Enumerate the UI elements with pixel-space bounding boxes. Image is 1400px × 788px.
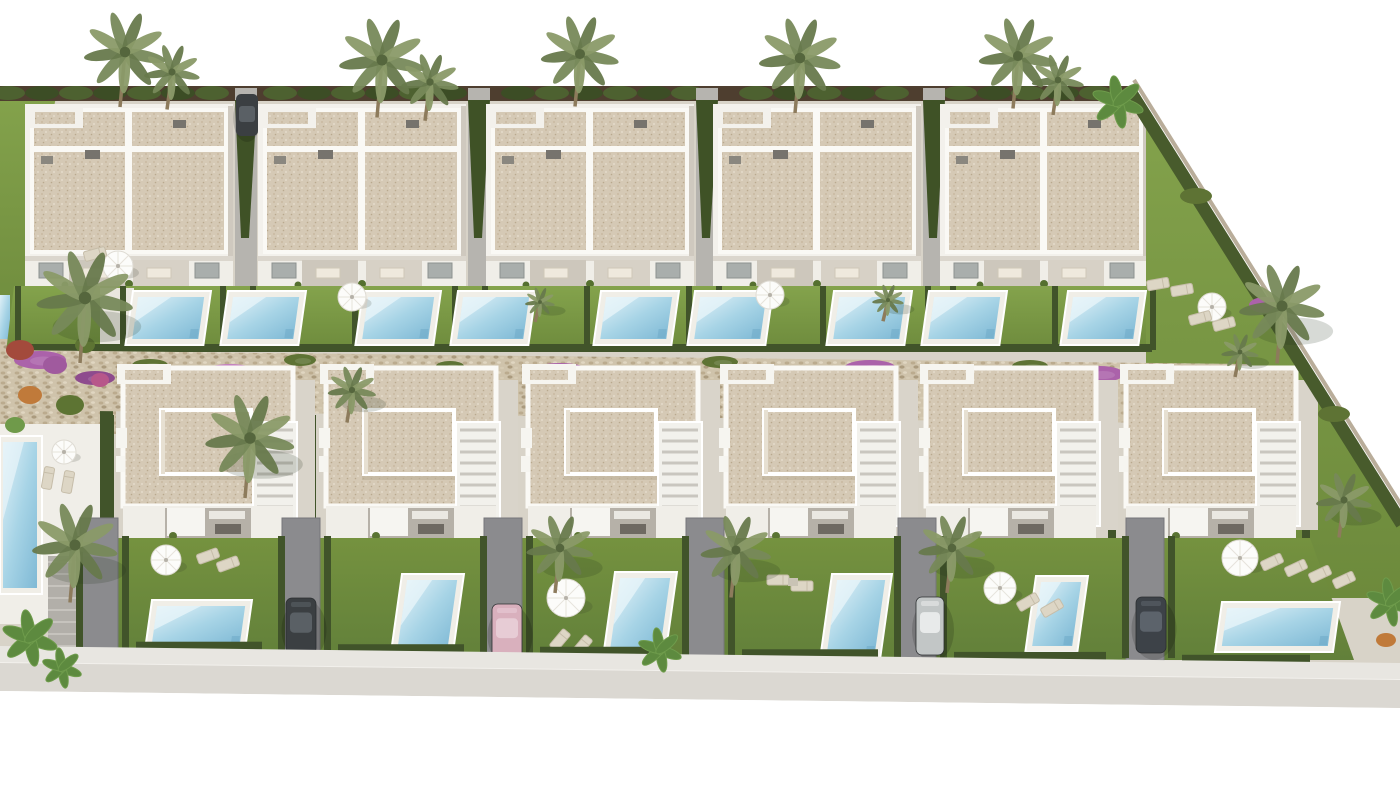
wall-hedge bbox=[263, 86, 297, 100]
dining-table bbox=[215, 524, 241, 534]
wall-hedge bbox=[297, 86, 331, 100]
villa-5 bbox=[919, 364, 1118, 540]
awning bbox=[370, 508, 408, 536]
private-pool bbox=[125, 291, 211, 345]
roof-vent bbox=[318, 150, 333, 159]
duplex-facade bbox=[940, 256, 1148, 290]
private-pool bbox=[1060, 291, 1146, 345]
villa-1 bbox=[116, 364, 315, 540]
wall-hedge bbox=[59, 86, 93, 100]
window bbox=[1110, 263, 1134, 278]
wall-hedge bbox=[841, 86, 875, 100]
dining-set bbox=[316, 268, 340, 278]
private-pool bbox=[1215, 602, 1340, 652]
kitchen-counter bbox=[412, 511, 448, 519]
duplex-building-4 bbox=[713, 104, 921, 290]
render-canvas bbox=[0, 0, 1400, 788]
roof-vent bbox=[1000, 150, 1015, 159]
property-hedge bbox=[584, 286, 590, 350]
private-pool bbox=[220, 291, 306, 345]
wall-hedge bbox=[501, 86, 535, 100]
kitchen-counter bbox=[1212, 511, 1248, 519]
dining-table bbox=[418, 524, 444, 534]
villa-development-aerial-render bbox=[0, 0, 1400, 788]
awning bbox=[167, 508, 205, 536]
dining-set bbox=[771, 268, 795, 278]
garden-shrub bbox=[18, 386, 42, 404]
wall-hedge bbox=[161, 86, 195, 100]
dining-table bbox=[620, 524, 646, 534]
communal-pool bbox=[0, 436, 42, 594]
villa-4 bbox=[719, 364, 918, 540]
top-row-duplexes bbox=[25, 104, 1148, 290]
wall-hedge bbox=[25, 86, 59, 100]
roof-solarium bbox=[1164, 410, 1254, 474]
roof-vent bbox=[1088, 120, 1101, 128]
wall-hedge bbox=[875, 86, 909, 100]
dining-set bbox=[380, 268, 404, 278]
dining-set bbox=[608, 268, 632, 278]
property-hedge bbox=[122, 536, 129, 658]
villa-6 bbox=[1119, 364, 1318, 540]
duplex-facade bbox=[713, 256, 921, 290]
property-hedge bbox=[1122, 536, 1129, 658]
roof-vent bbox=[956, 156, 968, 164]
villa-3 bbox=[521, 364, 720, 540]
private-pool bbox=[450, 291, 536, 345]
outdoor-kitchen-terrace bbox=[1168, 508, 1254, 540]
dining-table bbox=[1018, 524, 1044, 534]
roof-vent bbox=[502, 156, 514, 164]
property-hedge bbox=[894, 536, 901, 658]
roof-vent bbox=[861, 120, 874, 128]
garden-shrub bbox=[56, 395, 84, 415]
side-table bbox=[788, 578, 798, 586]
property-hedge bbox=[480, 536, 487, 658]
dining-set bbox=[835, 268, 859, 278]
private-pool bbox=[355, 291, 441, 345]
outdoor-kitchen-terrace bbox=[968, 508, 1054, 540]
wall-hedge bbox=[977, 86, 1011, 100]
dining-set bbox=[1062, 268, 1086, 278]
roof-vent bbox=[41, 156, 53, 164]
window bbox=[428, 263, 452, 278]
awning bbox=[1170, 508, 1208, 536]
wall-hedge bbox=[637, 86, 671, 100]
boundary-shrub bbox=[1180, 188, 1212, 204]
wall-hedge bbox=[535, 86, 569, 100]
property-hedge bbox=[682, 536, 689, 658]
wall-hedge bbox=[603, 86, 637, 100]
duplex-building-2 bbox=[258, 104, 466, 290]
outdoor-kitchen-terrace bbox=[768, 508, 854, 540]
roof-solarium bbox=[364, 410, 454, 474]
garden-shrub bbox=[91, 373, 109, 387]
wall-hedge bbox=[739, 86, 773, 100]
garden-shrub bbox=[6, 340, 34, 360]
dining-table bbox=[1218, 524, 1244, 534]
property-hedge bbox=[820, 286, 826, 350]
awning bbox=[572, 508, 610, 536]
bottom-row-villas bbox=[116, 364, 1318, 540]
roof-solarium bbox=[964, 410, 1054, 474]
duplex-facade bbox=[486, 256, 694, 290]
awning bbox=[770, 508, 808, 536]
parked-car-top bbox=[233, 94, 261, 142]
garden-shrub bbox=[1376, 633, 1396, 647]
dining-set bbox=[147, 268, 171, 278]
outdoor-kitchen-terrace bbox=[368, 508, 454, 540]
wall-hedge bbox=[943, 86, 977, 100]
window bbox=[500, 263, 524, 278]
boundary-shrub bbox=[1318, 406, 1350, 422]
dining-set bbox=[544, 268, 568, 278]
wall-hedge bbox=[195, 86, 229, 100]
window bbox=[272, 263, 296, 278]
roof-solarium bbox=[764, 410, 854, 474]
private-pool bbox=[921, 291, 1007, 345]
property-hedge bbox=[1150, 286, 1156, 350]
garden-shrub bbox=[5, 417, 25, 433]
property-hedge bbox=[1052, 286, 1058, 350]
window bbox=[883, 263, 907, 278]
dining-table bbox=[818, 524, 844, 534]
roof-solarium bbox=[566, 410, 656, 474]
private-pool bbox=[820, 574, 892, 662]
white-bottom bbox=[0, 691, 1400, 788]
duplex-building-3 bbox=[486, 104, 694, 290]
roof-vent bbox=[173, 120, 186, 128]
roof-vent bbox=[546, 150, 561, 159]
roof-vent bbox=[729, 156, 741, 164]
window bbox=[954, 263, 978, 278]
kitchen-counter bbox=[812, 511, 848, 519]
kitchen-counter bbox=[614, 511, 650, 519]
roof-vent bbox=[85, 150, 100, 159]
window bbox=[195, 263, 219, 278]
private-pool bbox=[826, 291, 912, 345]
private-pool bbox=[1025, 576, 1088, 652]
white-sky bbox=[0, 0, 1400, 86]
duplex-facade bbox=[258, 256, 466, 290]
kitchen-counter bbox=[1012, 511, 1048, 519]
roof-vent bbox=[773, 150, 788, 159]
roof-vent bbox=[406, 120, 419, 128]
private-pool bbox=[593, 291, 679, 345]
window bbox=[656, 263, 680, 278]
dining-set bbox=[998, 268, 1022, 278]
duplex-building-5 bbox=[940, 104, 1148, 290]
roof-vent bbox=[274, 156, 286, 164]
garden-shrub bbox=[43, 356, 67, 374]
kitchen-counter bbox=[209, 511, 245, 519]
roof-vent bbox=[634, 120, 647, 128]
outdoor-kitchen-terrace bbox=[165, 508, 251, 540]
window bbox=[727, 263, 751, 278]
